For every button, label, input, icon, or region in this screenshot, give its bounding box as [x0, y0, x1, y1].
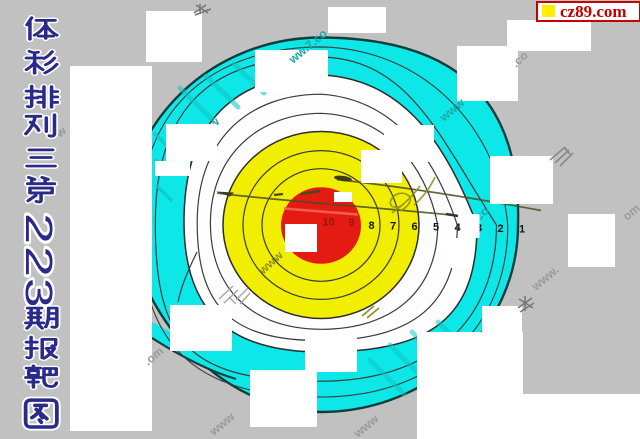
svg-text:2: 2	[497, 223, 503, 235]
svg-text:2: 2	[17, 246, 59, 277]
svg-text:5: 5	[433, 222, 439, 234]
svg-text:4: 4	[454, 222, 461, 234]
svg-text:1: 1	[519, 224, 525, 236]
svg-text:3: 3	[18, 278, 61, 308]
svg-text:8: 8	[368, 220, 374, 232]
svg-text:7: 7	[390, 221, 396, 233]
svg-text:6: 6	[411, 221, 417, 233]
svg-text:10: 10	[322, 217, 334, 229]
svg-text:cz89.com: cz89.com	[560, 2, 627, 21]
svg-text:9: 9	[348, 217, 354, 229]
svg-text:2: 2	[17, 213, 59, 244]
